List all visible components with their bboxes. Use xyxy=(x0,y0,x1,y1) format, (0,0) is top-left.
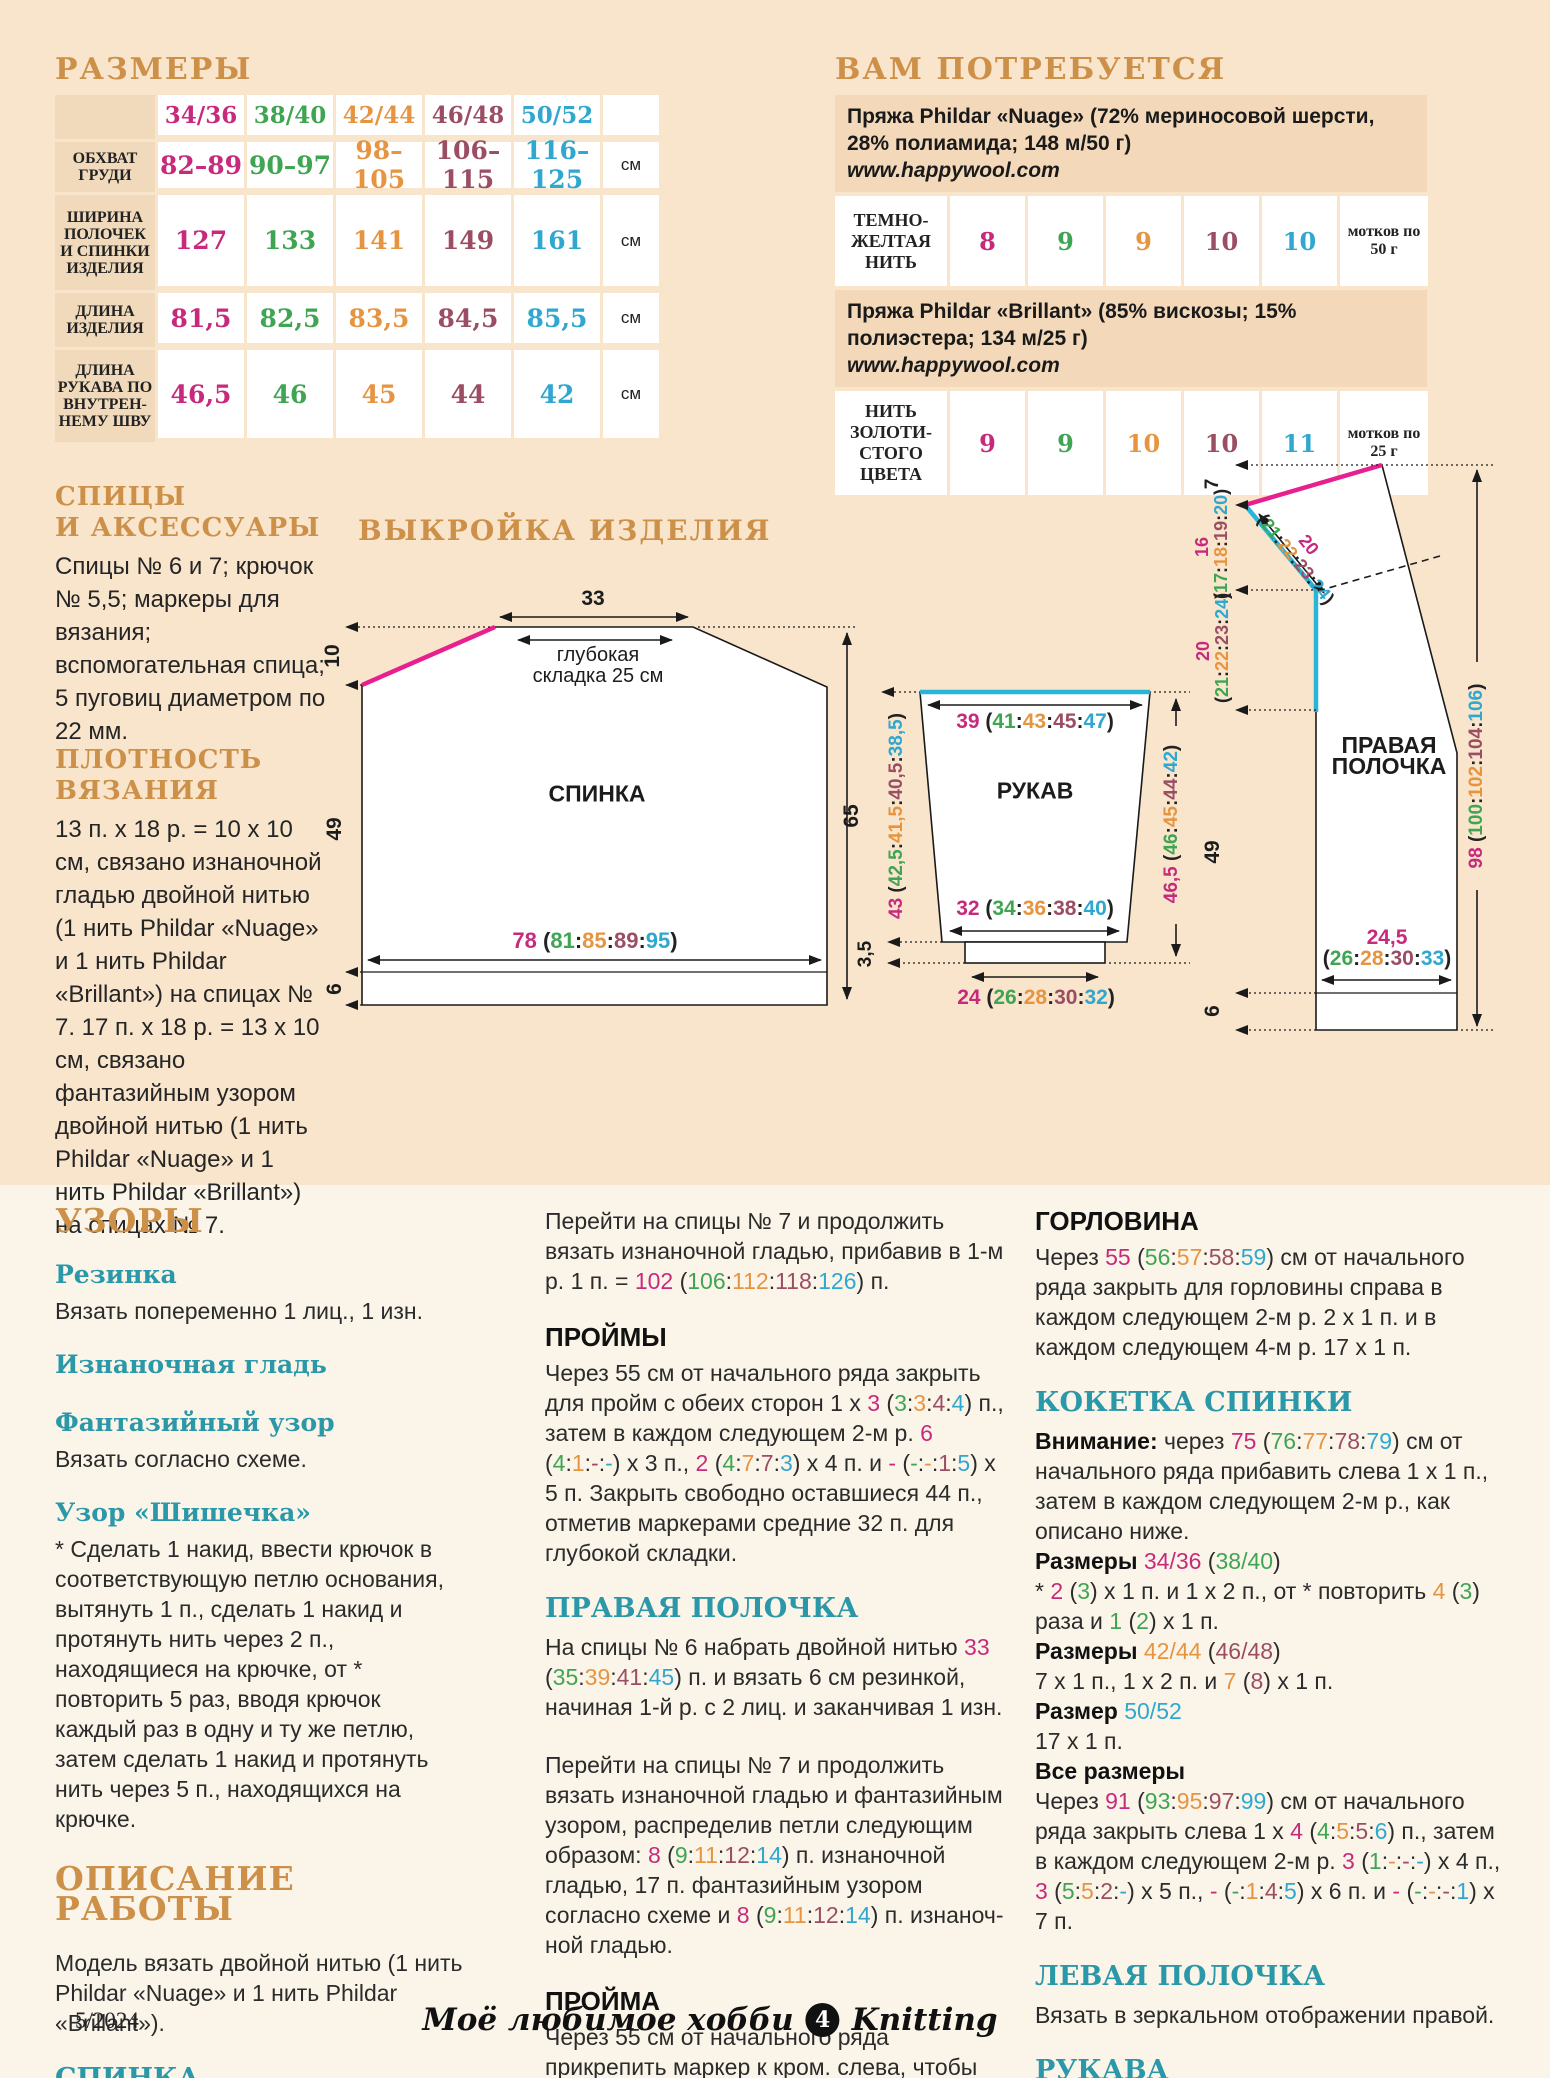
column-patterns: УЗОРЫ Резинка Вязать попеременно 1 лиц.,… xyxy=(55,1206,467,2078)
sleeves-heading: РУКАВА xyxy=(1035,2056,1505,2078)
gauge-body: 13 п. х 18 р. = 10 х 10 см, связано изна… xyxy=(55,813,327,1242)
bust-unit: см xyxy=(603,142,659,188)
yoke-size3-text: 17 х 1 п. xyxy=(1035,1726,1505,1756)
sleeve-unit: см xyxy=(603,350,659,438)
width-unit: см xyxy=(603,195,659,286)
fold-line1: глубокая xyxy=(533,645,664,666)
front-label-line2: ПОЛОЧКА xyxy=(1332,756,1447,777)
front-length-label: 98 (100:102:104:106) xyxy=(1466,684,1488,869)
sleeve-cuff-width-label: 24 (26:28:30:32) xyxy=(957,986,1115,1010)
sleeve-34-36: 46,5 xyxy=(158,350,244,438)
neckline-heading: ГОРЛОВИНА xyxy=(1035,1206,1505,1236)
needles-section: СПИЦЫ И АКСЕССУАРЫ Спицы № 6 и 7; крючок… xyxy=(55,482,327,748)
footer-title-part1: Моё любимое хобби xyxy=(422,2002,793,2038)
issue-number: 5/2024 xyxy=(75,2008,139,2034)
yarn1-qty-46-48: 10 xyxy=(1184,196,1259,286)
yarn1-unit: мотков по 50 г xyxy=(1340,196,1428,286)
back-dim-49: 49 xyxy=(323,817,347,840)
needles-title-line2: И АКСЕССУАРЫ xyxy=(55,513,320,543)
fold-line2: складка 25 см xyxy=(533,666,664,687)
front-dim-6: 6 xyxy=(1201,1005,1225,1017)
gauge-section: ПЛОТНОСТЬ ВЯЗАНИЯ 13 п. х 18 р. = 10 х 1… xyxy=(55,745,327,1242)
row-label-sleeve-length: ДЛИНА РУКАВА ПО ВНУТРЕН-НЕМУ ШВУ xyxy=(55,350,155,442)
back-continue-paragraph: Перейти на спицы № 7 и продолжить вязать… xyxy=(545,1206,1013,1296)
bust-38-40: 90–97 xyxy=(247,142,333,188)
sleeve-top-width-label: 39 (41:43:45:47) xyxy=(956,710,1114,734)
yarn2-description: Пряжа Phildar «Brillant» (85% вискозы; 1… xyxy=(835,290,1427,387)
front-below-neck-label: 20 (21:22:23:24) xyxy=(1194,599,1232,703)
left-front-heading: ЛЕВАЯ ПОЛОЧКА xyxy=(1035,1962,1505,1992)
sizes-title: РАЗМЕРЫ xyxy=(55,52,252,87)
front-neck-height-label: 16 (17:18:19:20) xyxy=(1193,495,1231,599)
back-text-heading: СПИНКА xyxy=(55,2064,467,2078)
yarn1-qty-34-36: 8 xyxy=(950,196,1025,286)
back-top-width-label: 33 xyxy=(581,587,604,611)
sleeve-piece-shape xyxy=(882,692,1190,977)
yarn1-qty-38-40: 9 xyxy=(1028,196,1103,286)
size-col-50-52: 50/52 xyxy=(514,95,600,135)
magazine-page: РАЗМЕРЫ 34/36 38/40 42/44 46/48 50/52 ОБ… xyxy=(0,0,1550,2078)
fancy-heading: Фантазийный узор xyxy=(55,1408,467,1438)
schematic-drawing xyxy=(300,430,1550,1150)
width-42-44: 141 xyxy=(336,195,422,286)
front-bottom-width-label: 24,5 (26:28:30:33) xyxy=(1307,927,1467,969)
armholes-heading: ПРОЙМЫ xyxy=(545,1322,1013,1352)
sleeve-right-height-label: 46,5 (46:45:44:42) xyxy=(1161,745,1183,903)
back-piece-label: СПИНКА xyxy=(549,781,646,808)
sleeve-left-height-label: 43 (42,5:41,5:40,5:38,5) xyxy=(886,713,908,919)
width-38-40: 133 xyxy=(247,195,333,286)
rib-heading: Резинка xyxy=(55,1260,467,1290)
bust-50-52: 116–125 xyxy=(514,142,600,188)
sleeve-46-48: 44 xyxy=(425,350,511,438)
all-sizes-text: Через 91 (93:95:97:99) см от начального … xyxy=(1035,1786,1505,1936)
right-front-paragraph-2: Перейти на спицы № 7 и продолжить вязать… xyxy=(545,1750,1013,1960)
length-34-36: 81,5 xyxy=(158,293,244,343)
yarn1-desc-text: Пряжа Phildar «Nuage» (72% мериносовой ш… xyxy=(847,105,1374,155)
yarn1-url: www.happywool.com xyxy=(847,159,1060,182)
armholes-paragraph: Через 55 см от начального ряда закрыть д… xyxy=(545,1358,1013,1568)
footer-title-part2: Knitting xyxy=(852,2002,998,2038)
yarn2-desc-text: Пряжа Phildar «Brillant» (85% вискозы; 1… xyxy=(847,300,1296,350)
needles-title-line1: СПИЦЫ xyxy=(55,482,186,512)
fancy-paragraph: Вязать согласно схеме. xyxy=(55,1444,467,1474)
right-front-heading: ПРАВАЯ ПОЛОЧКА xyxy=(545,1594,1013,1624)
row-label-bust: ОБХВАТ ГРУДИ xyxy=(55,142,155,192)
materials-title: ВАМ ПОТРЕБУЕТСЯ xyxy=(835,52,1226,87)
yoke-sizes1-text: * 2 (3) х 1 п. и 1 х 2 п., от * повторит… xyxy=(1035,1576,1505,1636)
yoke-sizes2-text: 7 х 1 п., 1 х 2 п. и 7 (8) х 1 п. xyxy=(1035,1666,1505,1696)
front-dim-49: 49 xyxy=(1201,840,1225,863)
purl-heading: Изнаночная гладь xyxy=(55,1350,467,1380)
row-label-width: ШИРИНА ПОЛОЧЕК И СПИНКИ ИЗДЕЛИЯ xyxy=(55,195,155,290)
rib-paragraph: Вязать попеременно 1 лиц., 1 изн. xyxy=(55,1296,467,1326)
yarn1-qty-42-44: 9 xyxy=(1106,196,1181,286)
gauge-title-line1: ПЛОТНОСТЬ xyxy=(55,745,262,775)
yoke-sizes1-heading: Размеры 34/36 (38/40) xyxy=(1035,1546,1505,1576)
length-unit: см xyxy=(603,293,659,343)
right-front-paragraph-1: На спицы № 6 набрать двойной нитью 33 (3… xyxy=(545,1632,1013,1722)
footer-magazine-title: Моё любимое хобби 4 Knitting xyxy=(422,2002,997,2038)
gauge-title-line2: ВЯЗАНИЯ xyxy=(55,776,219,806)
sizes-unit-header-empty xyxy=(603,95,659,135)
size-col-42-44: 42/44 xyxy=(336,95,422,135)
yoke-size3-heading: Размер 50/52 xyxy=(1035,1696,1505,1726)
sleeve-bottom-width-label: 32 (34:36:38:40) xyxy=(956,897,1114,921)
neckline-paragraph: Через 55 (56:57:58:59) см от начального … xyxy=(1035,1242,1505,1362)
width-50-52: 161 xyxy=(514,195,600,286)
row-label-length: ДЛИНА ИЗДЕЛИЯ xyxy=(55,293,155,347)
back-dim-6: 6 xyxy=(323,983,347,995)
size-col-46-48: 46/48 xyxy=(425,95,511,135)
sleeve-42-44: 45 xyxy=(336,350,422,438)
column-middle: Перейти на спицы № 7 и продолжить вязать… xyxy=(545,1206,1013,2078)
back-fold-label: глубокая складка 25 см xyxy=(533,645,664,687)
bust-42-44: 98–105 xyxy=(336,142,422,188)
yoke-intro: Внимание: через 75 (76:77:78:79) см от н… xyxy=(1035,1426,1505,1546)
width-34-36: 127 xyxy=(158,195,244,286)
left-front-paragraph: Вязать в зеркальном отображении правой. xyxy=(1035,2000,1505,2030)
sleeve-dim-3-5: 3,5 xyxy=(855,941,877,967)
width-46-48: 149 xyxy=(425,195,511,286)
yarn1-row-label: ТЕМНО-ЖЕЛТАЯ НИТЬ xyxy=(835,196,947,286)
column-right: ГОРЛОВИНА Через 55 (56:57:58:59) см от н… xyxy=(1035,1206,1505,2078)
front-dim-7: 7 xyxy=(1202,479,1224,490)
bobble-heading: Узор «Шишечка» xyxy=(55,1498,467,1528)
sleeve-38-40: 46 xyxy=(247,350,333,438)
back-bottom-width-label: 78 (81:85:89:95) xyxy=(512,928,677,954)
yoke-heading: КОКЕТКА СПИНКИ xyxy=(1035,1388,1505,1418)
back-dim-10: 10 xyxy=(321,644,345,667)
yarn1-amounts-row: ТЕМНО-ЖЕЛТАЯ НИТЬ 8 9 9 10 10 мотков по … xyxy=(835,196,1427,286)
length-42-44: 83,5 xyxy=(336,293,422,343)
sleeve-50-52: 42 xyxy=(514,350,600,438)
size-col-34-36: 34/36 xyxy=(158,95,244,135)
length-38-40: 82,5 xyxy=(247,293,333,343)
sizes-corner-cell xyxy=(55,95,155,139)
patterns-title: УЗОРЫ xyxy=(55,1206,467,1236)
work-title: ОПИСАНИЕ РАБОТЫ xyxy=(55,1864,467,1924)
sizes-table: 34/36 38/40 42/44 46/48 50/52 ОБХВАТ ГРУ… xyxy=(55,95,659,442)
all-sizes-heading: Все размеры xyxy=(1035,1756,1505,1786)
yarn1-qty-50-52: 10 xyxy=(1262,196,1337,286)
size-col-38-40: 38/40 xyxy=(247,95,333,135)
bust-46-48: 106–115 xyxy=(425,142,511,188)
footer-issue-badge: 4 xyxy=(806,2003,840,2037)
length-46-48: 84,5 xyxy=(425,293,511,343)
bobble-paragraph: * Сделать 1 накид, ввести крючок в соотв… xyxy=(55,1534,467,1834)
back-dim-65: 65 xyxy=(840,804,864,827)
length-50-52: 85,5 xyxy=(514,293,600,343)
front-piece-label: ПРАВАЯ ПОЛОЧКА xyxy=(1332,735,1447,777)
bust-34-36: 82–89 xyxy=(158,142,244,188)
needles-body: Спицы № 6 и 7; крючок № 5,5; маркеры для… xyxy=(55,550,327,748)
yoke-sizes2-heading: Размеры 42/44 (46/48) xyxy=(1035,1636,1505,1666)
sleeve-piece-label: РУКАВ xyxy=(997,778,1074,805)
yarn2-url: www.happywool.com xyxy=(847,354,1060,377)
yarn1-description: Пряжа Phildar «Nuage» (72% мериносовой ш… xyxy=(835,95,1427,192)
